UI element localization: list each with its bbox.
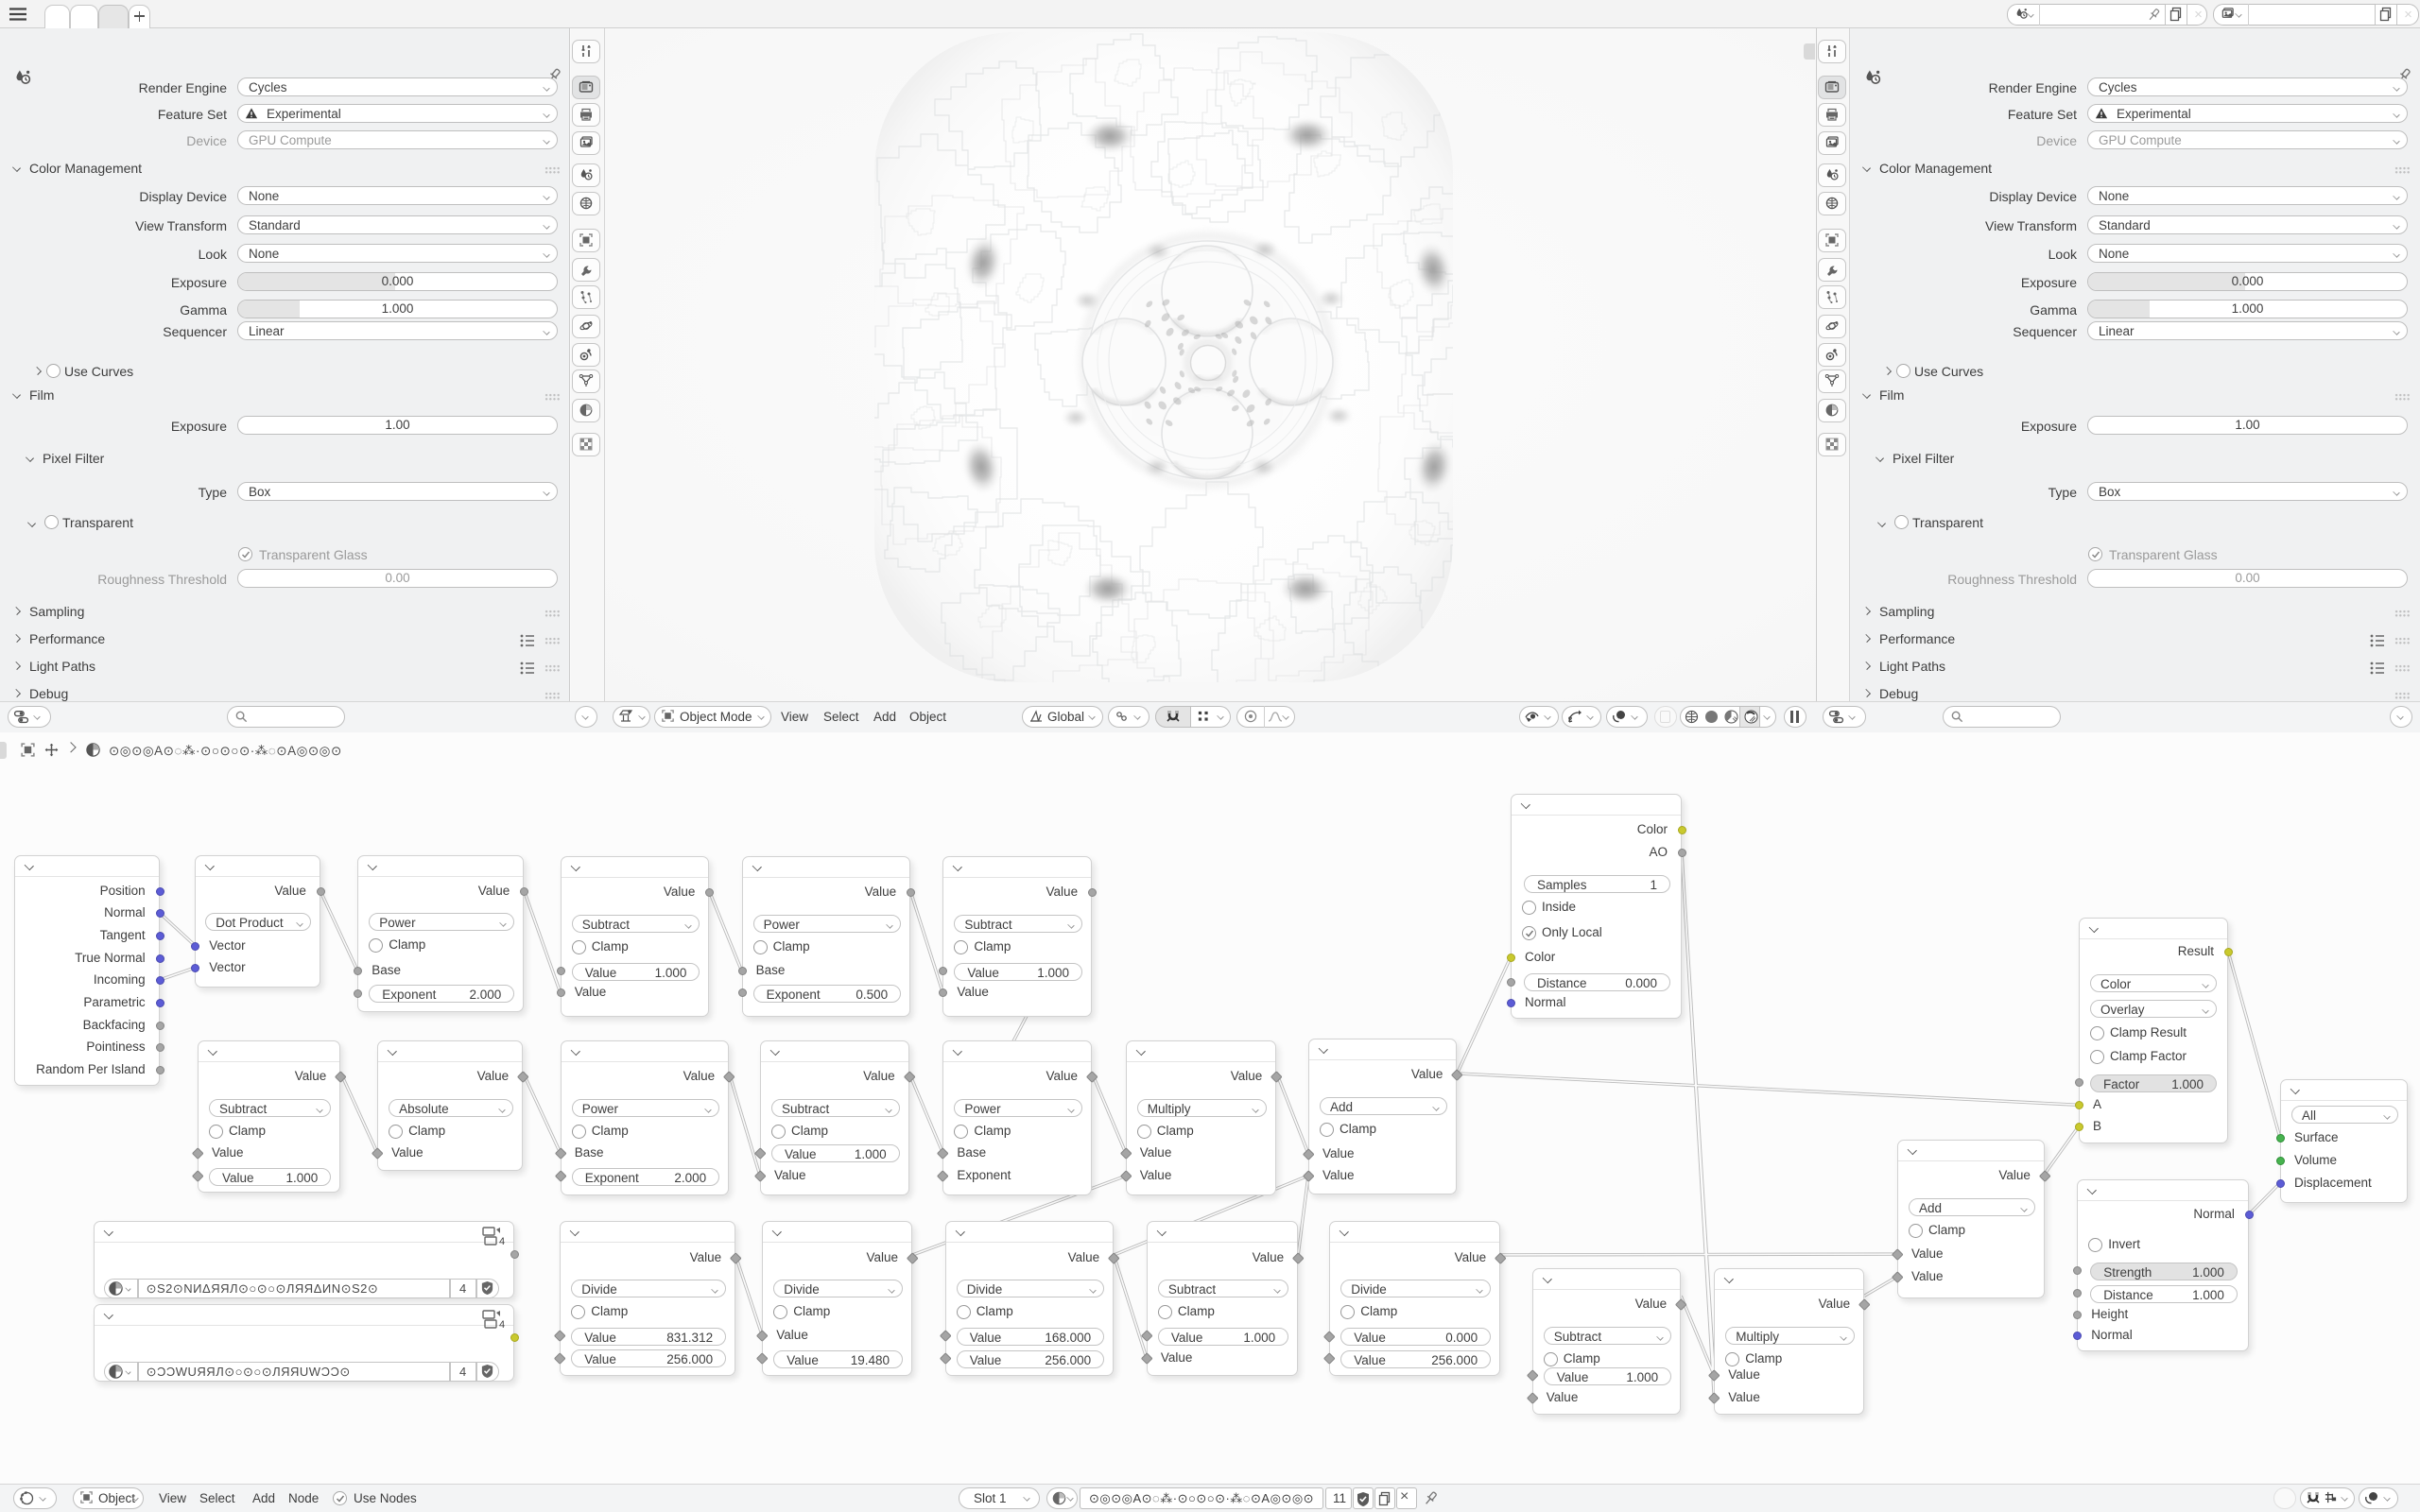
svg-text:4: 4 — [499, 1319, 505, 1330]
svg-text:4: 4 — [499, 1236, 505, 1246]
